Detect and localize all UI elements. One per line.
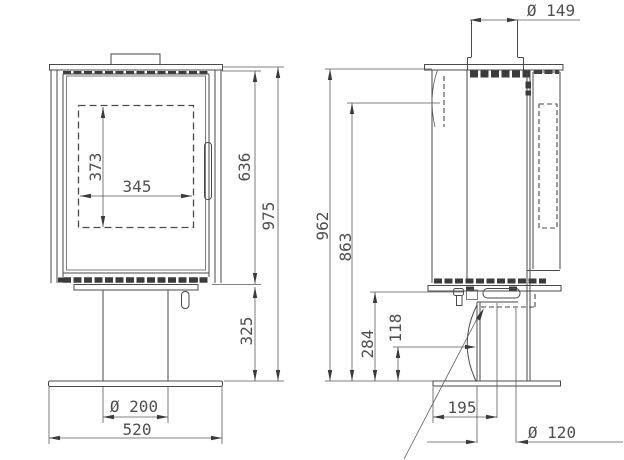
dim-label-glass-height: 373 <box>86 153 105 182</box>
side-pedestal-front <box>477 302 518 381</box>
side-dimension-arrows <box>328 18 528 444</box>
dim-label-height-upper: 863 <box>336 233 355 262</box>
front-top-plate <box>50 65 223 71</box>
dim-label-height-under-body: 284 <box>358 330 377 359</box>
dim-label-overall-height: 975 <box>259 202 278 231</box>
side-top-plate <box>425 65 564 71</box>
hinge-block-lower <box>526 91 532 96</box>
side-hinge-lines <box>527 70 530 381</box>
front-bolt-left <box>58 278 67 283</box>
dim-label-body-height: 636 <box>235 153 254 182</box>
front-bolt-right <box>189 278 198 283</box>
dim-label-air-inlet-diameter: Ø 120 <box>528 423 576 442</box>
dim-label-base-width: 520 <box>123 420 152 439</box>
dim-label-inlet-offset: 195 <box>448 398 477 417</box>
dim-label-height-low: 118 <box>386 314 405 343</box>
flue-pipe <box>472 20 518 57</box>
front-underplate <box>74 285 198 291</box>
front-door-frame <box>63 74 209 277</box>
side-view <box>404 20 563 459</box>
front-pedestal <box>103 290 168 381</box>
dim-label-height-to-top: 962 <box>313 212 332 241</box>
front-view-dimensions: 373 345 636 975 325 Ø 200 520 <box>49 67 284 444</box>
front-view <box>49 54 223 387</box>
side-pedestal-curve <box>467 305 477 381</box>
dim-label-pedestal-diameter: Ø 200 <box>110 397 158 416</box>
front-dimension-arrows <box>49 67 280 440</box>
dim-label-glass-width: 345 <box>123 177 152 196</box>
flue-collar <box>468 58 524 71</box>
front-extension-lines <box>49 67 284 444</box>
air-control-knob-front <box>182 292 190 309</box>
rear-heat-shield-hidden <box>539 104 557 228</box>
side-rear-panel <box>533 72 560 269</box>
air-control-knob-side-stem <box>457 296 463 306</box>
dim-label-pedestal-height: 325 <box>237 317 256 346</box>
front-base-plate <box>49 381 223 387</box>
side-front-curve <box>432 70 437 127</box>
technical-drawing-page: 373 345 636 975 325 Ø 200 520 <box>0 0 624 460</box>
front-flue-cap <box>111 54 160 64</box>
stove-dimension-drawing: 373 345 636 975 325 Ø 200 520 <box>0 0 624 460</box>
hinge-block-upper <box>526 82 532 89</box>
dim-label-flue-diameter: Ø 149 <box>527 1 575 20</box>
